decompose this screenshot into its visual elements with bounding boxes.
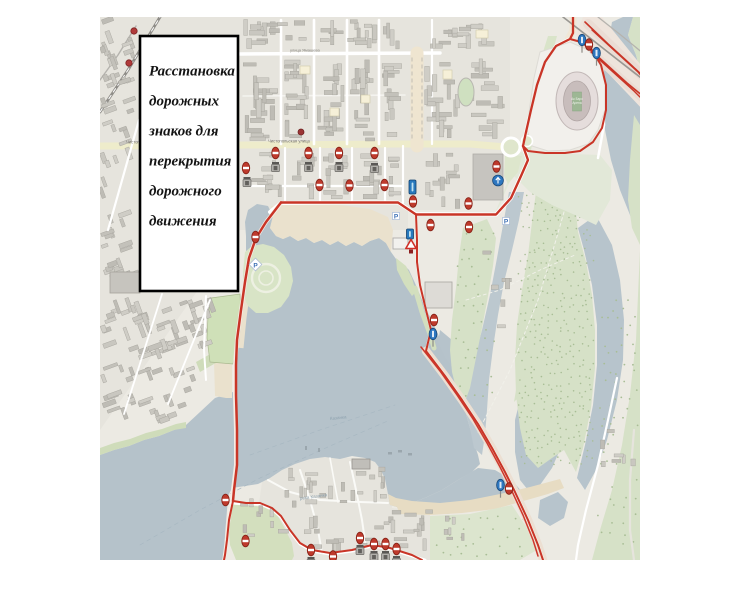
svg-text:перекрытия: перекрытия: [149, 154, 232, 170]
svg-text:P: P: [253, 262, 258, 269]
svg-text:Чистопольская улица: Чистопольская улица: [268, 139, 311, 144]
svg-text:P: P: [504, 218, 509, 225]
svg-text:дорожного: дорожного: [149, 184, 222, 200]
svg-text:P: P: [394, 213, 399, 220]
svg-text:движения: движения: [149, 214, 217, 230]
svg-text:дорожных: дорожных: [149, 94, 220, 110]
svg-text:знаков для: знаков для: [148, 124, 219, 140]
svg-text:Расстановка: Расстановка: [149, 64, 235, 80]
svg-text:улица Ямашева: улица Ямашева: [290, 48, 320, 53]
svg-text:Арена: Арена: [572, 101, 581, 105]
